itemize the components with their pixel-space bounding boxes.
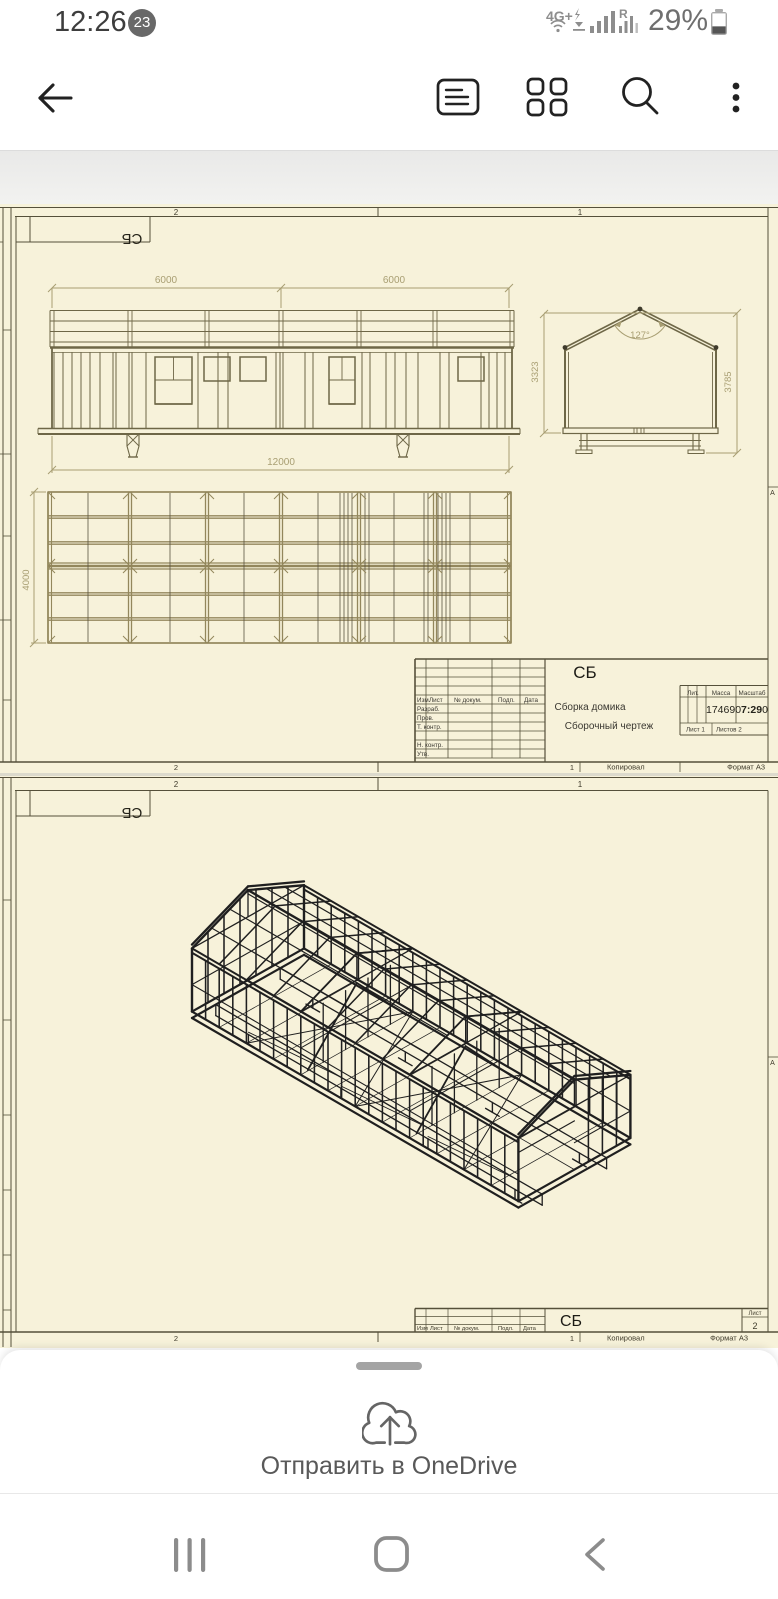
svg-text:№ докум.: № докум. [454, 1326, 480, 1332]
svg-text:Пров.: Пров. [417, 715, 434, 722]
svg-text:1: 1 [578, 208, 583, 217]
svg-text:1: 1 [570, 1334, 574, 1343]
svg-text:Масса: Масса [712, 690, 731, 697]
svg-text:Дата: Дата [524, 697, 538, 704]
svg-text:СБ: СБ [573, 663, 596, 682]
svg-text:Н. контр.: Н. контр. [417, 742, 443, 749]
svg-text:А: А [770, 490, 775, 497]
svg-text:2: 2 [174, 763, 178, 772]
svg-text:Копировал: Копировал [607, 763, 645, 772]
svg-text:12000: 12000 [267, 457, 295, 468]
svg-text:1: 1 [578, 780, 583, 789]
svg-text:Лист: Лист [429, 697, 443, 704]
svg-text:Формат А3: Формат А3 [727, 763, 765, 772]
svg-text:Масштаб: Масштаб [739, 689, 766, 697]
svg-text:3323: 3323 [530, 361, 541, 382]
svg-text:4000: 4000 [21, 569, 32, 590]
svg-text:№ докум.: № докум. [454, 697, 482, 704]
svg-text:Лист 1: Лист 1 [686, 727, 705, 734]
svg-text:6000: 6000 [155, 275, 178, 286]
svg-text:Лист: Лист [430, 1326, 443, 1332]
svg-text:2: 2 [752, 1321, 757, 1331]
svg-text:127°: 127° [630, 330, 650, 341]
svg-text:Утв.: Утв. [417, 751, 429, 758]
svg-text:Лист: Лист [748, 1311, 761, 1317]
svg-text:Копировал: Копировал [607, 1334, 645, 1343]
svg-text:Формат А3: Формат А3 [710, 1334, 748, 1343]
svg-text:2: 2 [174, 780, 179, 789]
svg-text:Подл.: Подл. [498, 1326, 514, 1332]
svg-text:6000: 6000 [383, 275, 406, 286]
svg-text:Разраб.: Разраб. [417, 705, 440, 713]
svg-text:Дата: Дата [523, 1326, 537, 1332]
svg-text:Т. контр.: Т. контр. [417, 724, 442, 731]
svg-text:1746907:290: 1746907:290 [706, 704, 768, 716]
svg-text:СБ: СБ [560, 1313, 582, 1330]
svg-text:Подп.: Подп. [498, 697, 515, 704]
svg-text:СБ: СБ [122, 230, 143, 247]
svg-text:А: А [770, 1060, 775, 1067]
svg-text:2: 2 [174, 1334, 178, 1343]
svg-text:1: 1 [570, 763, 574, 772]
svg-text:2: 2 [174, 208, 179, 217]
svg-text:Изм: Изм [417, 1326, 428, 1332]
svg-text:СБ: СБ [122, 804, 143, 821]
svg-text:3785: 3785 [723, 371, 734, 392]
svg-text:Сборка домика: Сборка домика [554, 701, 625, 713]
svg-text:Листов 2: Листов 2 [716, 727, 742, 734]
svg-text:Сборочный чертеж: Сборочный чертеж [565, 720, 654, 732]
svg-text:Лит.: Лит. [687, 690, 699, 697]
